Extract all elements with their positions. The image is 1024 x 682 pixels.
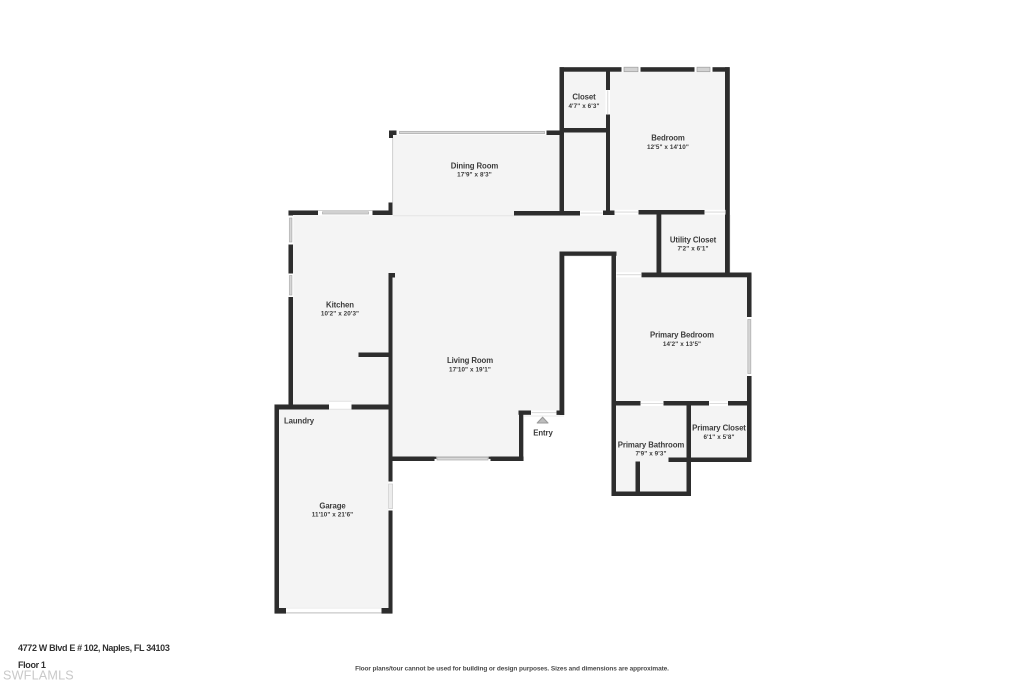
svg-text:Floor plans/tour cannot be use: Floor plans/tour cannot be used for buil… [355,665,669,672]
svg-text:Primary Bedroom: Primary Bedroom [650,331,714,340]
svg-text:17'9" x 8'3": 17'9" x 8'3" [457,172,492,179]
svg-text:12'5" x 14'10": 12'5" x 14'10" [647,144,689,151]
svg-text:11'10" x 21'6": 11'10" x 21'6" [312,512,354,519]
svg-text:4'7" x 6'3": 4'7" x 6'3" [568,103,599,110]
svg-text:6'1" x 5'8": 6'1" x 5'8" [703,434,734,441]
svg-text:4772 W Blvd E # 102, Naples, F: 4772 W Blvd E # 102, Naples, FL 34103 [18,643,170,653]
svg-text:Bedroom: Bedroom [651,134,685,143]
svg-text:7'9" x 9'3": 7'9" x 9'3" [635,451,666,458]
svg-text:SWFLAMLS: SWFLAMLS [3,669,74,682]
svg-text:Living Room: Living Room [447,356,493,365]
svg-text:Entry: Entry [533,429,553,438]
svg-text:Laundry: Laundry [284,417,315,426]
svg-text:14'2" x 13'5": 14'2" x 13'5" [663,341,701,348]
svg-text:Dining Room: Dining Room [451,161,499,170]
svg-text:7'2" x 6'1": 7'2" x 6'1" [677,246,708,253]
svg-text:Primary Bathroom: Primary Bathroom [618,440,685,449]
svg-text:Garage: Garage [319,501,346,510]
svg-text:Utility Closet: Utility Closet [670,235,717,244]
svg-text:Kitchen: Kitchen [326,300,354,309]
svg-text:17'10" x 19'1": 17'10" x 19'1" [449,366,491,373]
svg-text:Primary Closet: Primary Closet [692,424,746,433]
svg-text:Closet: Closet [572,93,596,102]
svg-text:10'2" x 20'3": 10'2" x 20'3" [321,311,359,318]
